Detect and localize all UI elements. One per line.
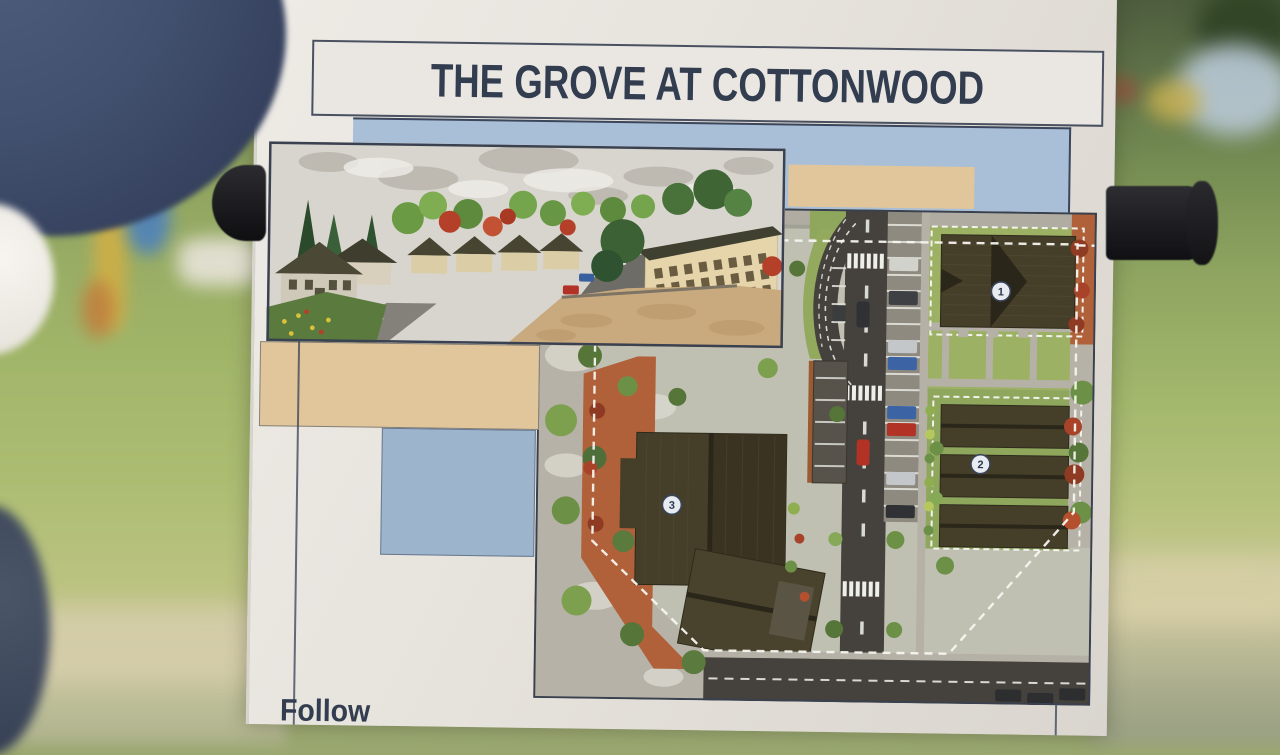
yellow-foliage-right — [1146, 80, 1202, 122]
poster-frame-line-right — [1055, 703, 1057, 735]
mounting-knob-right-cap — [1186, 181, 1218, 265]
pale-band-right — [1100, 556, 1280, 622]
poster-title-box: THE GROVE AT COTTONWOOD — [311, 40, 1104, 127]
poster-board: THE GROVE AT COTTONWOOD — [246, 0, 1117, 736]
poster-bottom-text: Follow — [280, 692, 371, 729]
mounting-knob-right — [1106, 186, 1198, 260]
svg-text:3: 3 — [669, 500, 675, 512]
building-marker-1: 1 — [991, 282, 1010, 301]
building-marker-2: 2 — [971, 455, 990, 474]
playground-orange-blob — [82, 280, 114, 338]
decorative-tan-block-right — [788, 164, 975, 209]
poster-title: THE GROVE AT COTTONWOOD — [431, 52, 985, 115]
svg-text:2: 2 — [977, 459, 983, 471]
decorative-tan-block-left — [259, 341, 540, 430]
architectural-rendering — [266, 141, 786, 348]
playground-white-blob — [178, 238, 262, 286]
decorative-blue-block-left — [380, 428, 536, 557]
svg-text:1: 1 — [998, 286, 1004, 298]
building-marker-3: 3 — [662, 495, 681, 514]
